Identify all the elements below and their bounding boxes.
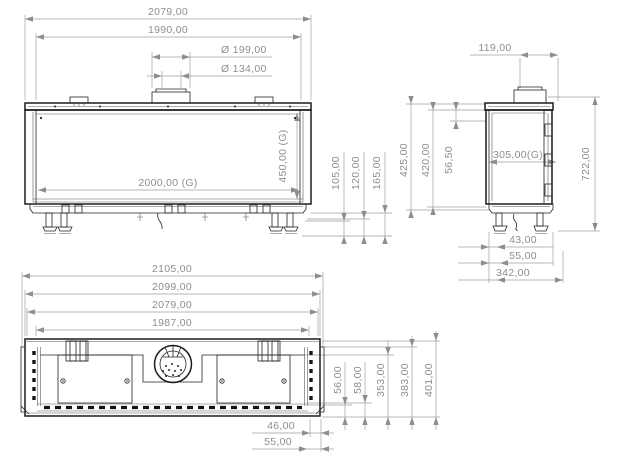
bottom-dim-depth-4: 383,00: [399, 363, 411, 397]
front-dim-glass-width: 2000,00 (G): [138, 177, 197, 189]
bottom-dim-depth-3: 353,00: [375, 363, 387, 397]
front-dim-overall-width: 2079,00: [148, 6, 188, 18]
front-dimension-arrows: [25, 16, 388, 244]
front-dim-plinth-3: 165,00: [371, 156, 383, 190]
bracket-right: [258, 341, 280, 361]
side-view: 119,00 425,00 420,00 56,50 305,00(G) 722…: [398, 42, 600, 283]
front-dim-plinth-2: 120,00: [350, 156, 362, 190]
front-dim-inner-width: 1990,00: [148, 24, 188, 36]
side-dim-flue-offset: 119,00: [478, 42, 511, 54]
side-dim-depth-inner-2: 420,00: [420, 143, 432, 177]
front-dimension-lines: 2079,00 1990,00 Ø 199,00 Ø 134,00 2000,0…: [25, 6, 392, 244]
bottom-dimension-lines: 2105,00 2099,00 2079,00 1987,00 56,00 58…: [22, 263, 440, 452]
flue-opening-bottom: [155, 346, 192, 383]
top-clamp-left: [70, 97, 88, 103]
adjustable-feet-side: [493, 213, 548, 234]
hinge-1: [545, 124, 552, 136]
bottom-view: 2105,00 2099,00 2079,00 1987,00 56,00 58…: [21, 263, 440, 452]
side-dim-foot-offset-2: 55,00: [509, 250, 537, 262]
side-dim-height-overall: 722,00: [580, 147, 592, 181]
front-view: 2079,00 1990,00 Ø 199,00 Ø 134,00 2000,0…: [25, 6, 392, 244]
front-dim-flue-inner-dia: Ø 134,00: [221, 63, 267, 75]
technical-drawing-sheet: 2079,00 1990,00 Ø 199,00 Ø 134,00 2000,0…: [0, 0, 624, 460]
flue-collar-front: [152, 92, 190, 103]
base-outline-bottom: [25, 339, 320, 416]
front-dim-glass-height: 450,00 (G): [277, 129, 289, 182]
bottom-dim-depth-5: 401,00: [423, 363, 435, 397]
bottom-dimension-arrows: [22, 273, 439, 451]
access-panel-right: [217, 355, 290, 403]
top-clamp-right: [255, 97, 273, 103]
side-dimension-lines: 119,00 425,00 420,00 56,50 305,00(G) 722…: [398, 42, 600, 283]
mounting-tabs-front: [137, 213, 249, 221]
side-dim-depth-overall: 342,00: [496, 267, 530, 279]
access-panel-left: [58, 355, 132, 403]
bracket-left: [66, 341, 88, 361]
bottom-body: [21, 339, 324, 416]
base-rail-side: [489, 204, 553, 213]
front-dim-flue-outer-dia: Ø 199,00: [221, 44, 267, 56]
flue-collar-side: [514, 90, 546, 103]
bottom-dim-depth-2: 58,00: [352, 366, 364, 394]
gas-pipe-front: [158, 213, 162, 229]
front-body: [25, 89, 311, 234]
side-dim-glass-depth: 305,00(G): [493, 149, 543, 161]
bottom-dim-width-1: 2105,00: [152, 263, 192, 275]
adjustable-feet-front: [43, 213, 298, 234]
gas-pipe-side: [513, 214, 517, 231]
bottom-dim-edge-1: 46,00: [267, 420, 295, 432]
bottom-dim-width-4: 1987,00: [152, 317, 192, 329]
bottom-dim-depth-1: 56,00: [332, 366, 344, 394]
side-dimension-arrows: [408, 52, 597, 282]
bottom-dim-edge-2: 55,00: [264, 436, 292, 448]
hinge-3: [545, 184, 552, 196]
fireplace-dimension-drawing: 2079,00 1990,00 Ø 199,00 Ø 134,00 2000,0…: [0, 0, 624, 460]
bottom-dim-width-2: 2099,00: [152, 281, 192, 293]
side-dim-top-depth: 56,50: [443, 146, 455, 174]
bottom-dim-width-3: 2079,00: [152, 299, 192, 311]
side-dim-depth-inner-1: 425,00: [398, 143, 410, 177]
side-dim-foot-offset-1: 43,00: [509, 234, 537, 246]
front-dim-plinth-1: 105,00: [330, 156, 342, 190]
